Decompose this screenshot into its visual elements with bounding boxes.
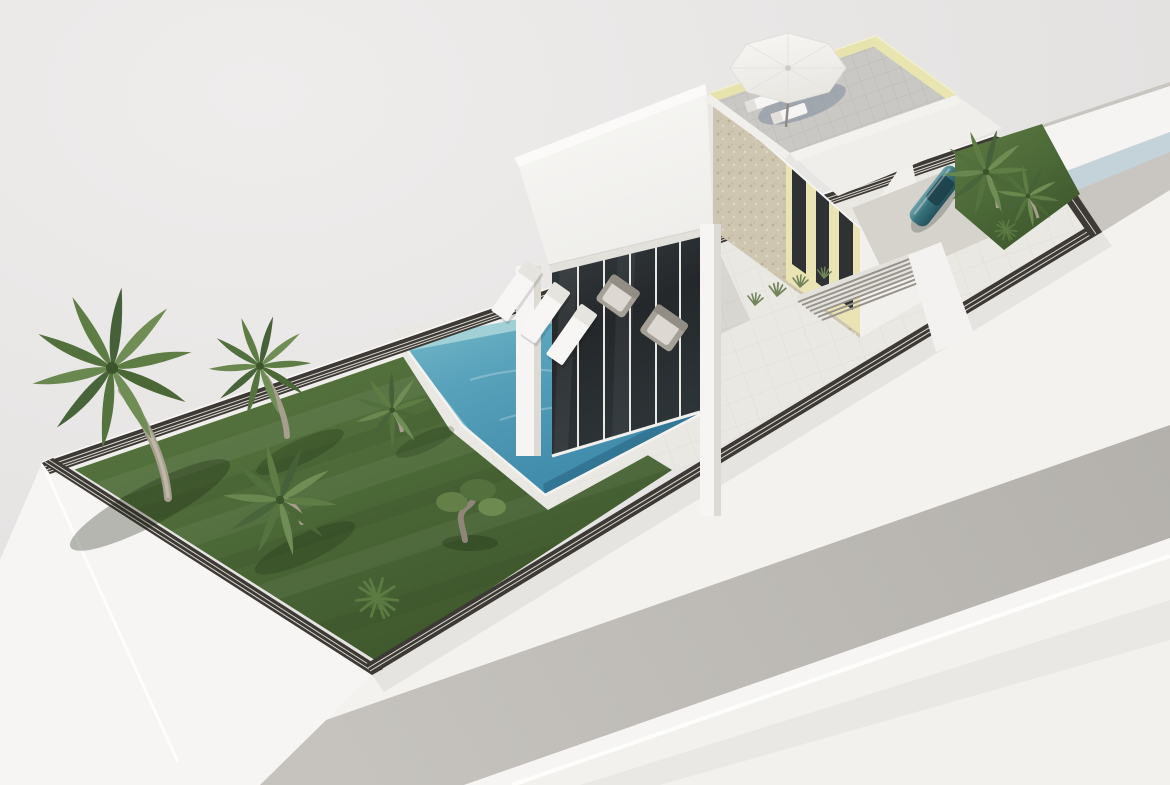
olive-foliage bbox=[478, 498, 506, 516]
villa-render bbox=[0, 0, 1170, 785]
parasol-hub bbox=[785, 65, 791, 71]
column-right-shade bbox=[714, 224, 721, 516]
olive-foliage bbox=[460, 479, 496, 501]
olive-shadow bbox=[442, 535, 498, 551]
render-scene bbox=[0, 0, 1170, 785]
side-window bbox=[792, 168, 806, 274]
column-left-shade bbox=[534, 266, 541, 456]
